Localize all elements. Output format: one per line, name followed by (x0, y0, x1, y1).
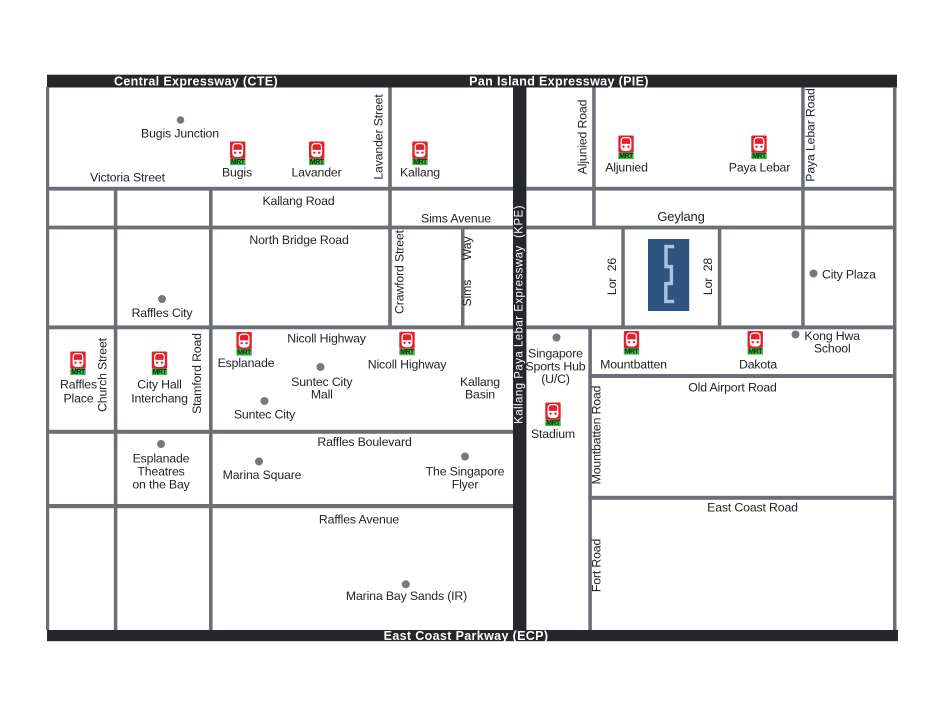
svg-text:Lor 28: Lor 28 (701, 258, 715, 296)
svg-text:Nicoll Highway: Nicoll Highway (287, 331, 367, 345)
svg-text:Suntec City: Suntec City (234, 407, 296, 421)
svg-text:Victoria Street: Victoria Street (90, 171, 165, 185)
svg-text:EsplanadeTheatreson the Bay: EsplanadeTheatreson the Bay (132, 452, 190, 492)
svg-text:Church Street: Church Street (96, 337, 110, 412)
svg-text:Dakota: Dakota (739, 357, 777, 371)
svg-text:Sims Avenue: Sims Avenue (421, 211, 491, 225)
svg-text:Crawford Street: Crawford Street (393, 229, 407, 314)
svg-text:Central Expressway (CTE): Central Expressway (CTE) (114, 75, 278, 89)
svg-text:Marina Bay Sands (IR): Marina Bay Sands (IR) (346, 589, 467, 603)
svg-text:Bugis: Bugis (222, 165, 252, 179)
svg-text:Aljunied Road: Aljunied Road (576, 99, 590, 174)
svg-text:East Coast Road: East Coast Road (707, 501, 798, 515)
svg-text:Lor 26: Lor 26 (605, 258, 619, 296)
svg-text:Lavander: Lavander (291, 165, 341, 179)
svg-text:East Coast Parkway (ECP): East Coast Parkway (ECP) (384, 629, 549, 643)
svg-text:Paya Lebar: Paya Lebar (729, 160, 790, 174)
svg-text:City HallInterchang: City HallInterchang (131, 378, 188, 406)
svg-text:Esplanade: Esplanade (218, 356, 275, 370)
svg-text:Geylang: Geylang (657, 209, 704, 224)
svg-text:Stamford Road: Stamford Road (190, 333, 204, 414)
svg-text:KallangBasin: KallangBasin (460, 375, 500, 401)
svg-text:Mountbatten Road: Mountbatten Road (590, 385, 604, 484)
svg-text:Mountbatten: Mountbatten (600, 357, 667, 371)
svg-text:Marina Square: Marina Square (223, 468, 302, 482)
svg-text:Paya Lebar Road: Paya Lebar Road (804, 88, 818, 182)
svg-text:Kallang Road: Kallang Road (262, 194, 334, 208)
svg-text:Stadium: Stadium (531, 427, 575, 441)
svg-text:Nicoll Highway: Nicoll Highway (368, 358, 448, 372)
svg-text:Raffles Avenue: Raffles Avenue (319, 513, 399, 527)
svg-text:Old Airport Road: Old Airport Road (688, 380, 777, 394)
svg-text:Raffles Boulevard: Raffles Boulevard (317, 435, 412, 449)
svg-text:RafflesPlace: RafflesPlace (60, 378, 97, 406)
svg-text:Raffles City: Raffles City (132, 306, 194, 320)
svg-text:Kallang Paya Lebar Expressway: Kallang Paya Lebar Expressway (KPE) (514, 205, 526, 424)
svg-text:North Bridge Road: North Bridge Road (249, 233, 349, 247)
svg-text:Pan Island Expressway (PIE): Pan Island Expressway (PIE) (469, 75, 649, 89)
svg-text:Aljunied: Aljunied (605, 160, 648, 174)
svg-text:Sims Way: Sims Way (460, 235, 474, 306)
svg-text:Bugis Junction: Bugis Junction (141, 126, 219, 140)
svg-text:Kallang: Kallang (400, 165, 440, 179)
svg-text:Fort Road: Fort Road (590, 539, 604, 593)
svg-text:Lavander Street: Lavander Street (372, 94, 386, 180)
svg-text:City Plaza: City Plaza (822, 267, 876, 281)
